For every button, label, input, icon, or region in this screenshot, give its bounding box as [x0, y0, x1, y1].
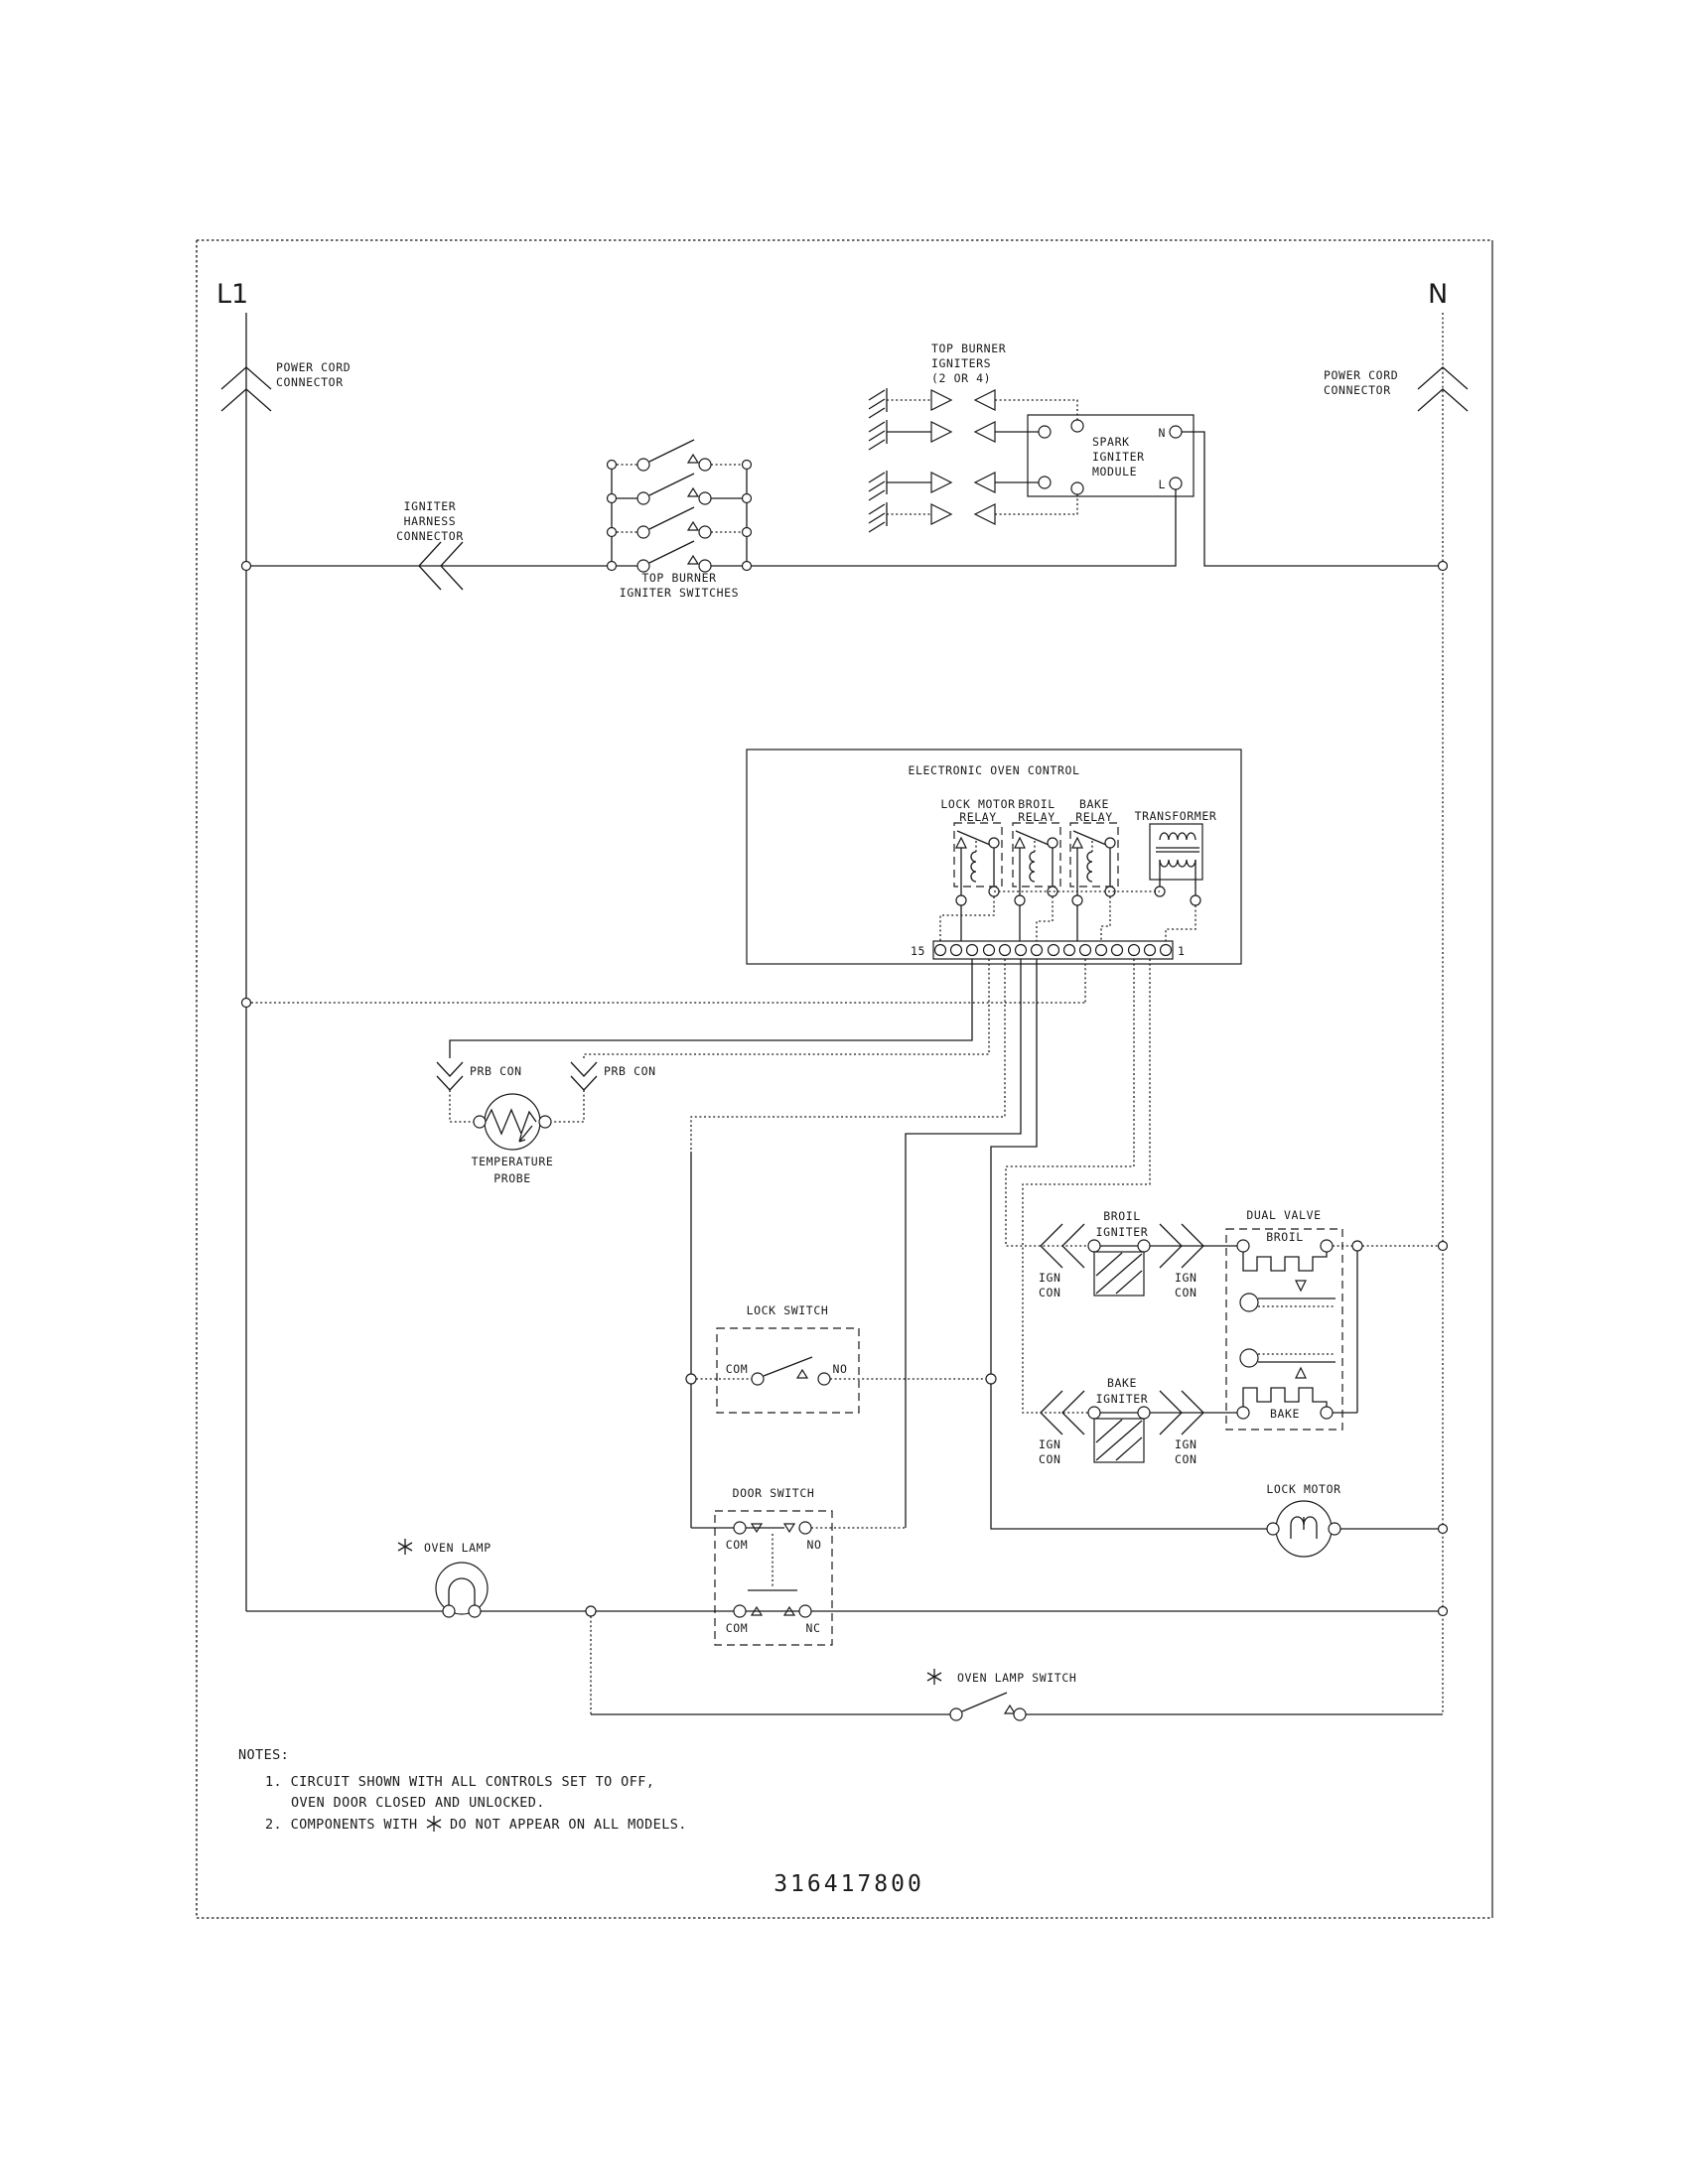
power-cord-label-line2: CONNECTOR — [1324, 383, 1391, 397]
lock-switch-com-label: COM — [726, 1362, 749, 1376]
lock-switch-no-label: NO — [832, 1362, 847, 1376]
spark-module-label-line3: MODULE — [1092, 465, 1137, 478]
igniter-element-icon — [1094, 1252, 1144, 1296]
transformer-label: TRANSFORMER — [1135, 809, 1217, 823]
dual-valve: DUAL VALVE BROIL BAKE — [1226, 1208, 1438, 1430]
switch-bank-label-line2: IGNITER SWITCHES — [620, 586, 739, 600]
door-switch: DOOR SWITCH COM NO COM NC — [715, 1486, 832, 1645]
spark-module-terminal-n: N — [1158, 426, 1166, 440]
spark-module-terminal-l: L — [1158, 478, 1166, 491]
n-label: N — [1428, 279, 1448, 310]
harness-label-line3: CONNECTOR — [396, 529, 464, 543]
ign-con-connector-icon — [1041, 1224, 1084, 1268]
igniters-label-line2: IGNITERS — [931, 356, 991, 370]
lock-switch-title: LOCK SWITCH — [747, 1303, 829, 1317]
probe-label-line2: PROBE — [493, 1171, 531, 1185]
left-rail: L1 POWER CORD CONNECTOR — [216, 279, 351, 1611]
door-switch-com-lower: COM — [726, 1621, 749, 1635]
dual-valve-bake-label: BAKE — [1270, 1407, 1300, 1421]
eoc-internal-wires — [940, 891, 1196, 941]
oven-lamp: OVEN LAMP — [398, 1539, 492, 1617]
prb-con-connector-icon — [437, 1062, 463, 1090]
switch-bank-label-line1: TOP BURNER — [641, 571, 716, 585]
probe-label-line1: TEMPERATURE — [472, 1155, 554, 1168]
ign-con-label-line1: IGN — [1039, 1437, 1061, 1451]
power-cord-label-line1: POWER CORD — [1324, 368, 1398, 382]
wiring-diagram-page: L1 POWER CORD CONNECTOR N POWER CORD CON… — [0, 0, 1688, 2184]
harness-label-line1: IGNITER — [404, 499, 457, 513]
spark-module-label-line1: SPARK — [1092, 435, 1130, 449]
relay-label-line1: BROIL — [1018, 797, 1055, 811]
ign-con-label-line1: IGN — [1175, 1437, 1197, 1451]
prb-con-label: PRB CON — [470, 1064, 522, 1078]
electronic-oven-control: ELECTRONIC OVEN CONTROL LOCK MOTOR RELAY… — [747, 750, 1241, 964]
note-1-line1: 1. CIRCUIT SHOWN WITH ALL CONTROLS SET T… — [265, 1774, 654, 1790]
harness-label-line2: HARNESS — [404, 514, 457, 528]
lock-motor: LOCK MOTOR — [1266, 1482, 1438, 1557]
wiring-diagram-canvas: L1 POWER CORD CONNECTOR N POWER CORD CON… — [0, 0, 1688, 2184]
lock-switch: LOCK SWITCH COM NO — [686, 1303, 996, 1413]
igniter-electrode-icon — [869, 471, 887, 500]
temperature-probe: PRB CON PRB CON TEMPERATURE PROBE — [437, 1062, 656, 1185]
oven-lamp-switch: OVEN LAMP SWITCH — [591, 1616, 1443, 1720]
ign-con-label-line2: CON — [1039, 1452, 1061, 1466]
prb-con-label: PRB CON — [604, 1064, 656, 1078]
note-2-part2: DO NOT APPEAR ON ALL MODELS. — [450, 1817, 687, 1833]
door-switch-nc: NC — [805, 1621, 820, 1635]
strip-label-15: 15 — [911, 944, 925, 958]
ign-con-label-line1: IGN — [1175, 1271, 1197, 1285]
door-switch-no: NO — [806, 1538, 821, 1552]
bake-igniter: BAKE IGNITER IGN CON IGN CON — [1039, 1376, 1237, 1466]
igniter-harness-connector: IGNITER HARNESS CONNECTOR — [251, 499, 612, 590]
broil-igniter-label-line2: IGNITER — [1096, 1225, 1149, 1239]
l1-label: L1 — [216, 279, 248, 310]
lock-motor-relay: LOCK MOTOR RELAY — [940, 797, 1015, 941]
relay-label-line2: RELAY — [1075, 810, 1113, 824]
igniter-electrode-icon — [869, 420, 887, 450]
lock-motor-label: LOCK MOTOR — [1266, 1482, 1340, 1496]
notes: NOTES: 1. CIRCUIT SHOWN WITH ALL CONTROL… — [238, 1747, 687, 1833]
power-cord-label-line1: POWER CORD — [276, 360, 351, 374]
relay-label-line2: RELAY — [1018, 810, 1055, 824]
relay-label-line1: BAKE — [1079, 797, 1109, 811]
notes-heading: NOTES: — [238, 1747, 289, 1763]
igniter-electrode-icon — [869, 502, 887, 532]
ign-con-label-line2: CON — [1175, 1452, 1197, 1466]
note-1-line2: OVEN DOOR CLOSED AND UNLOCKED. — [291, 1795, 545, 1811]
lamp-line — [246, 1606, 1438, 1616]
eoc-title: ELECTRONIC OVEN CONTROL — [908, 763, 1079, 777]
top-burner-igniter-switches: TOP BURNER IGNITER SWITCHES — [608, 440, 752, 600]
igniter-element-icon — [1094, 1419, 1144, 1462]
dual-valve-broil-label: BROIL — [1266, 1230, 1304, 1244]
broil-igniter-label-line1: BROIL — [1103, 1209, 1141, 1223]
dual-valve-title: DUAL VALVE — [1246, 1208, 1321, 1222]
bake-relay: BAKE RELAY — [1070, 797, 1118, 941]
right-rail: N POWER CORD CONNECTOR — [1324, 279, 1468, 1714]
relay-label-line2: RELAY — [959, 810, 997, 824]
oven-lamp-switch-label: OVEN LAMP SWITCH — [957, 1671, 1076, 1685]
diagram-border — [197, 240, 1492, 1918]
asterisk-icon — [927, 1669, 941, 1685]
broil-relay: BROIL RELAY — [1013, 797, 1060, 941]
bake-igniter-label-line1: BAKE — [1107, 1376, 1137, 1390]
power-cord-label-line2: CONNECTOR — [276, 375, 344, 389]
bake-igniter-label-line2: IGNITER — [1096, 1392, 1149, 1406]
door-switch-title: DOOR SWITCH — [733, 1486, 815, 1500]
prb-con-connector-icon — [571, 1062, 597, 1090]
door-switch-com-upper: COM — [726, 1538, 749, 1552]
transformer: TRANSFORMER — [1135, 809, 1217, 905]
igniters-label-line1: TOP BURNER — [931, 341, 1006, 355]
asterisk-icon — [398, 1539, 412, 1555]
spark-module-label-line2: IGNITER — [1092, 450, 1145, 464]
part-number: 316417800 — [774, 1871, 924, 1897]
relay-label-line1: LOCK MOTOR — [940, 797, 1015, 811]
oven-lamp-label: OVEN LAMP — [424, 1541, 492, 1555]
eoc-terminal-strip: 15 1 — [911, 941, 1186, 959]
broil-igniter: BROIL IGNITER IGN CON IGN CON — [1039, 1209, 1237, 1299]
note-2-part1: 2. COMPONENTS WITH — [265, 1817, 418, 1833]
asterisk-icon — [427, 1816, 441, 1832]
ign-con-label-line1: IGN — [1039, 1271, 1061, 1285]
ign-con-label-line2: CON — [1175, 1286, 1197, 1299]
spark-igniter-module: SPARK IGNITER MODULE N L — [1028, 415, 1194, 496]
igniter-electrode-icon — [869, 388, 887, 418]
ign-con-label-line2: CON — [1039, 1286, 1061, 1299]
igniters-label-line3: (2 OR 4) — [931, 371, 991, 385]
strip-label-1: 1 — [1178, 944, 1186, 958]
